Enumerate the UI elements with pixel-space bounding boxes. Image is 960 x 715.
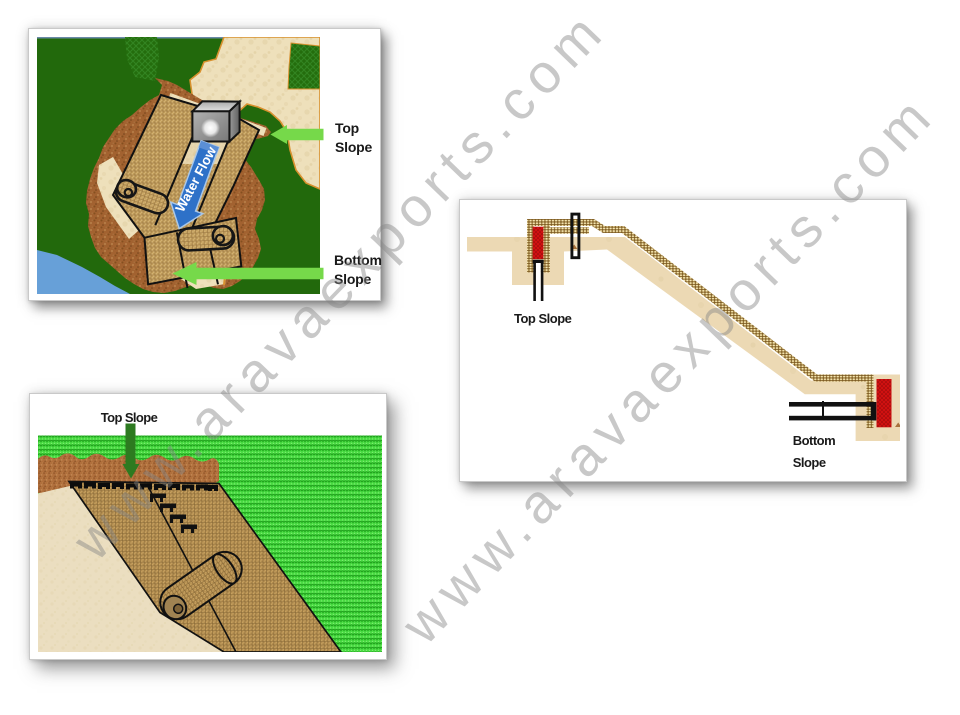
svg-text:Top Slope: Top Slope bbox=[101, 410, 158, 425]
svg-text:Top Slope: Top Slope bbox=[514, 311, 572, 326]
svg-text:Bottom: Bottom bbox=[793, 433, 836, 448]
svg-text:Slope: Slope bbox=[793, 455, 826, 470]
